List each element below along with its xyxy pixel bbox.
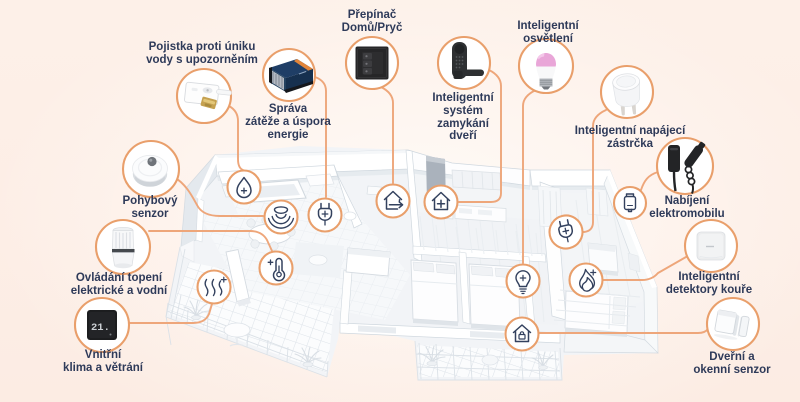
svg-text:21.: 21. bbox=[91, 322, 110, 334]
